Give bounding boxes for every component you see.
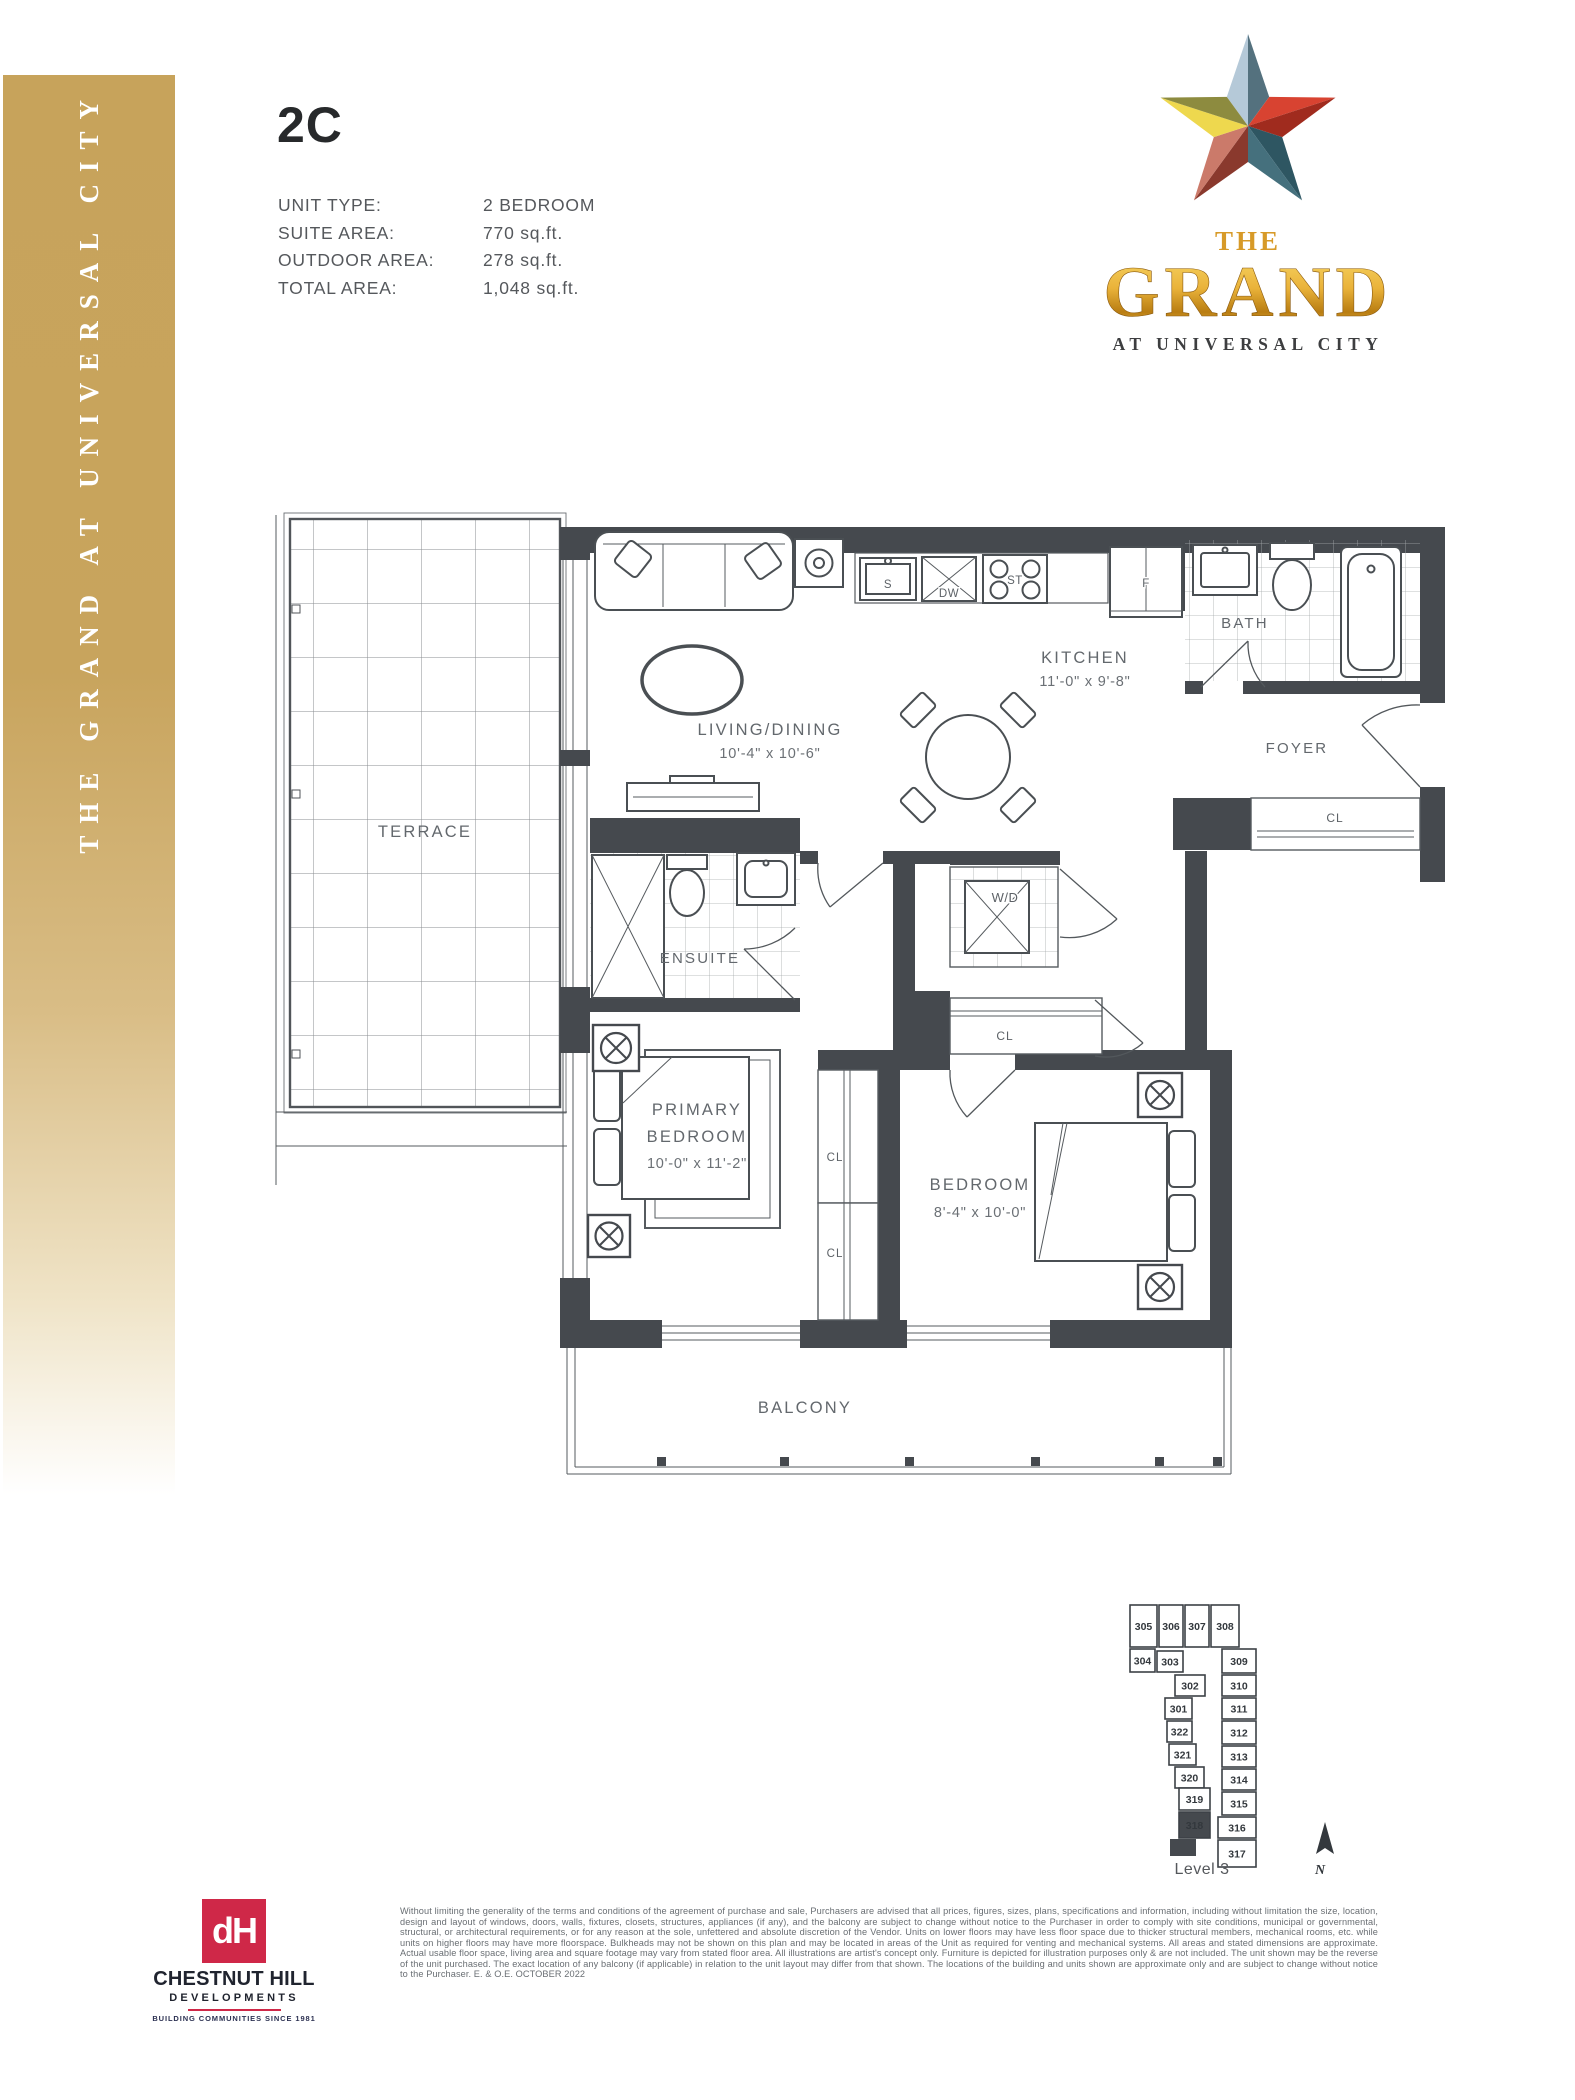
shower bbox=[592, 855, 664, 998]
keyplan-unit-number: 301 bbox=[1170, 1704, 1188, 1716]
foyer-closet: CL bbox=[1251, 798, 1420, 850]
ensuite-sink bbox=[737, 853, 795, 905]
keyplan-unit-number: 312 bbox=[1230, 1728, 1248, 1740]
keyplan-unit-number: 317 bbox=[1228, 1849, 1246, 1861]
hall-closet: CL bbox=[950, 998, 1143, 1057]
media-console bbox=[627, 776, 759, 811]
chestnut-hill-monogram: dH bbox=[212, 1910, 256, 1952]
dishwasher-label: DW bbox=[939, 588, 959, 600]
spec-label: SUITE AREA: bbox=[278, 220, 483, 247]
floorplan-page: THE GRAND AT UNIVERSAL CITY 2C UNIT TYPE… bbox=[0, 0, 1575, 2100]
keyplan-level-label: Level 3 bbox=[1174, 1861, 1229, 1878]
bathtub bbox=[1341, 547, 1401, 677]
entry-door bbox=[1362, 705, 1420, 787]
keyplan-unit-number: 313 bbox=[1230, 1752, 1248, 1764]
keyplan-unit-number: 306 bbox=[1162, 1621, 1180, 1633]
keyplan-unit-number: 303 bbox=[1161, 1657, 1179, 1669]
chestnut-hill-logo-icon: dH bbox=[202, 1899, 266, 1963]
keyplan-core bbox=[1170, 1839, 1196, 1856]
terrace: TERRACE bbox=[276, 513, 567, 1185]
kitchen-dim: 11'-0" x 9'-8" bbox=[1039, 674, 1130, 690]
bedroom-closets: CL CL bbox=[818, 1070, 878, 1320]
keyplan-unit-number: 307 bbox=[1188, 1621, 1206, 1633]
keyplan-unit-number: 318 bbox=[1186, 1820, 1204, 1832]
foyer: FOYER CL bbox=[1251, 705, 1420, 850]
north-label: N bbox=[1314, 1863, 1326, 1878]
sidebar: THE GRAND AT UNIVERSAL CITY bbox=[3, 88, 175, 1178]
bedroom-bed bbox=[1035, 1123, 1195, 1261]
sidebar-vertical-title: THE GRAND AT UNIVERSAL CITY bbox=[74, 88, 105, 854]
keyplan-unit-number: 320 bbox=[1181, 1773, 1199, 1785]
bedroom-door bbox=[950, 1070, 1015, 1117]
bathroom: BATH bbox=[1185, 540, 1420, 687]
closet-bottom-label: CL bbox=[827, 1248, 844, 1260]
keyplan-unit-number: 316 bbox=[1228, 1823, 1246, 1835]
spec-value: 1,048 sq.ft. bbox=[483, 275, 595, 302]
ensuite-label: ENSUITE bbox=[660, 950, 740, 967]
stove-label: ST bbox=[1007, 575, 1023, 587]
logo-tagline: AT UNIVERSAL CITY bbox=[1113, 334, 1384, 354]
living-label: LIVING/DINING bbox=[697, 721, 842, 739]
kitchen-label: KITCHEN bbox=[1041, 649, 1129, 667]
keyplan-unit-number: 310 bbox=[1230, 1681, 1248, 1693]
keyplan-unit-number: 315 bbox=[1230, 1799, 1248, 1811]
living-dim: 10'-4" x 10'-6" bbox=[719, 746, 820, 762]
primary-label-1: PRIMARY bbox=[652, 1101, 742, 1119]
keyplan-unit-number: 309 bbox=[1230, 1656, 1248, 1668]
spec-label: OUTDOOR AREA: bbox=[278, 247, 483, 274]
balcony: BALCONY bbox=[567, 1348, 1231, 1474]
legal-disclaimer: Without limiting the generality of the t… bbox=[400, 1906, 1378, 1980]
hall-closet-label: CL bbox=[996, 1029, 1013, 1043]
toilet bbox=[1270, 543, 1314, 610]
bath-sink bbox=[1193, 545, 1257, 595]
keyplan-units: 3053063073083093103113123133143153163173… bbox=[1130, 1605, 1256, 1867]
hall-door bbox=[818, 863, 883, 907]
west-window-wall bbox=[563, 560, 587, 1278]
keyplan-unit-number: 308 bbox=[1216, 1621, 1234, 1633]
primary-dim: 10'-0" x 11'-2" bbox=[647, 1156, 747, 1172]
developer-tagline: BUILDING COMMUNITIES SINCE 1981 bbox=[143, 2014, 325, 2023]
primary-label-2: BEDROOM bbox=[647, 1128, 748, 1146]
sofa bbox=[595, 532, 793, 610]
balcony-label: BALCONY bbox=[758, 1399, 852, 1417]
developer-name: CHESTNUT HILL bbox=[153, 1968, 315, 1991]
keyplan-unit-number: 321 bbox=[1174, 1750, 1192, 1762]
north-arrow-icon: N bbox=[1314, 1822, 1334, 1878]
wd-door bbox=[1060, 869, 1117, 938]
keyplan-unit-number: 314 bbox=[1230, 1775, 1248, 1787]
spec-value: 770 sq.ft. bbox=[483, 220, 595, 247]
fireplace-speaker bbox=[795, 539, 843, 587]
keyplan-unit-number: 302 bbox=[1181, 1681, 1199, 1693]
rug bbox=[642, 646, 742, 714]
fridge: F bbox=[1110, 547, 1182, 617]
spec-value: 2 BEDROOM bbox=[483, 192, 595, 219]
unit-specs: UNIT TYPE: 2 BEDROOM SUITE AREA: 770 sq.… bbox=[278, 192, 595, 301]
bedroom-dim: 8'-4" x 10'-0" bbox=[934, 1205, 1026, 1221]
developer-division: DEVELOPMENTS bbox=[153, 1992, 315, 2004]
washer-dryer: W/D bbox=[950, 867, 1117, 967]
terrace-label: TERRACE bbox=[378, 823, 472, 841]
unit-code: 2C bbox=[277, 96, 343, 154]
ensuite-toilet bbox=[667, 855, 707, 916]
keyplan-unit-number: 304 bbox=[1134, 1656, 1152, 1668]
keyplan-unit-number: 319 bbox=[1186, 1794, 1204, 1806]
floor-plan: TERRACE bbox=[205, 495, 1455, 1495]
closet-top-label: CL bbox=[827, 1152, 844, 1164]
developer-underline bbox=[188, 2009, 281, 2011]
spec-value: 278 sq.ft. bbox=[483, 247, 595, 274]
bedroom-label: BEDROOM bbox=[930, 1176, 1031, 1194]
foyer-closet-label: CL bbox=[1326, 811, 1343, 825]
spec-label: TOTAL AREA: bbox=[278, 275, 483, 302]
sink-label: S bbox=[884, 579, 892, 591]
keyplan: 3053063073083093103113123133143153163173… bbox=[1120, 1598, 1420, 1888]
kitchen-counter: S DW ST bbox=[855, 553, 1108, 603]
keyplan-unit-number: 322 bbox=[1171, 1727, 1189, 1739]
primary-bedroom: PRIMARY BEDROOM 10'-0" x 11'-2" bbox=[594, 1050, 780, 1228]
logo-grand: GRAND bbox=[1104, 252, 1393, 332]
spec-label: UNIT TYPE: bbox=[278, 192, 483, 219]
wd-label: W/D bbox=[992, 890, 1019, 905]
star-icon bbox=[1161, 34, 1336, 200]
keyplan-unit-number: 305 bbox=[1135, 1621, 1153, 1633]
dining-table bbox=[900, 692, 1037, 824]
bath-label: BATH bbox=[1221, 615, 1269, 632]
keyplan-unit-number: 311 bbox=[1231, 1704, 1248, 1716]
grand-logo: THE GRAND AT UNIVERSAL CITY bbox=[1070, 18, 1420, 378]
foyer-label: FOYER bbox=[1266, 740, 1329, 757]
fridge-label: F bbox=[1142, 578, 1150, 590]
ensuite: ENSUITE bbox=[590, 853, 800, 1000]
